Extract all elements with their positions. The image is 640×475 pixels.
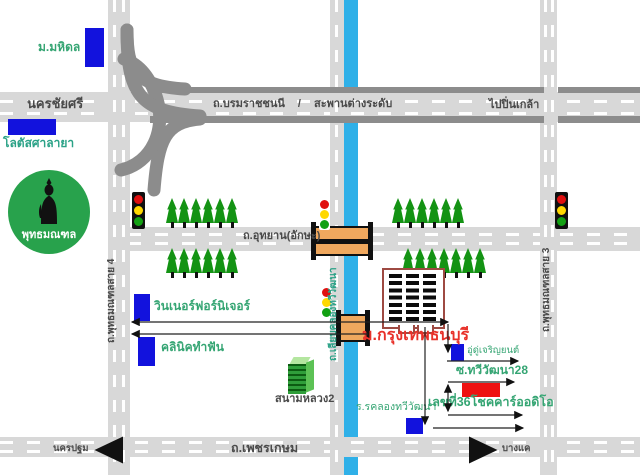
sanam-luang-building-icon [288,357,315,394]
ramp-north-east [127,30,185,89]
traffic-light-icon [319,199,330,230]
liap-khlong-label: ถ.เลียบคลองทวีวัฒนา [328,250,341,378]
mahidol-label: ม.มหิดล [38,41,80,54]
borommaratchachonnani-label: ถ.บรมราชชนนี [213,98,285,110]
road-phutthamonthon-sai4 [108,0,130,475]
park-label: พุทธมณฑล [22,225,77,243]
tree-icon [440,198,452,228]
tree-icon [474,248,486,278]
destination-label: ม.กรุงเทพธนบุรี [362,327,469,345]
garage-label: อู่ดู่เจริญยนต์ [467,346,519,356]
traffic-light-icon [555,192,568,229]
bang-khae-label: บางแค [502,444,530,454]
tree-icon [178,248,190,278]
garage-marker [451,344,464,361]
ramp-east-south [154,119,200,190]
highway-edge-top-east [558,87,640,93]
phutthamonthon-park: พุทธมณฑล [8,170,90,254]
sai3-label: ถ.พุทธมณฑลสาย 3 [541,244,555,336]
winner-furniture-label: วินเนอร์ฟอร์นิเจอร์ [154,300,250,313]
nakhon-chai-si-label: นครชัยศรี [27,97,83,111]
lotus-marker [8,119,56,135]
tree-icon [202,198,214,228]
school-label: ร.รคลองทวีวัฒนา [356,402,436,414]
highway-edge-bottom [150,116,544,123]
tree-icon [190,198,202,228]
tree-icon [416,198,428,228]
tree-icon [392,198,404,228]
highway-edge-top [150,87,544,93]
tree-icon [404,198,416,228]
bridge-icon [315,226,369,256]
dental-clinic-label: คลินิคทำฟัน [161,341,224,354]
overpass-label: สะพานต่างระดับ [314,98,392,110]
school-marker [406,418,423,434]
tree-icon [190,248,202,278]
dental-clinic-marker [138,337,155,366]
tree-icon [428,198,440,228]
sanam-luang-2-label: สนามหลวง2 [275,393,334,405]
phet-kasem-label: ถ.เพชรเกษม [231,442,298,456]
soi-28-label: ซ.ทวีวัฒนา28 [456,364,528,377]
tree-row [392,198,464,228]
highway-label: ถ.บรมราชชนนี / สะพานต่างระดับ [213,98,392,110]
university-building-icon [382,268,445,329]
tree-icon [226,248,238,278]
sai4-label: ถ.พุทธมณฑลสาย 4 [106,245,120,357]
car-audio-address-label: เลขที่36โชคคาร์ออดิโอ [428,396,554,410]
separator: / [298,98,301,110]
tree-icon [178,198,190,228]
tree-icon [166,198,178,228]
lotus-salaya-label: โลตัสศาลายา [3,137,74,150]
buddha-statue-icon [31,178,67,224]
mahidol-marker [85,28,104,67]
tree-icon [214,248,226,278]
traffic-light-icon [132,192,145,229]
tree-icon [226,198,238,228]
tree-icon [202,248,214,278]
tree-icon [462,248,474,278]
winner-furniture-marker [134,294,150,321]
to-pin-klao-label: ไปปิ่นเกล้า [489,99,539,111]
nakhon-pathom-label: นครปฐม [53,444,89,454]
highway-edge-bottom-east [558,116,640,123]
tree-row [166,248,238,278]
tree-row [166,198,238,228]
route-map: พุทธมณฑล ม.มหิดล โลตัสศาลายา นครชัยศรี ถ… [0,0,640,475]
tree-icon [450,248,462,278]
tree-icon [166,248,178,278]
tree-icon [452,198,464,228]
tree-icon [214,198,226,228]
utthayan-label: ถ.อุทยาน(อักษะ) [243,230,320,242]
